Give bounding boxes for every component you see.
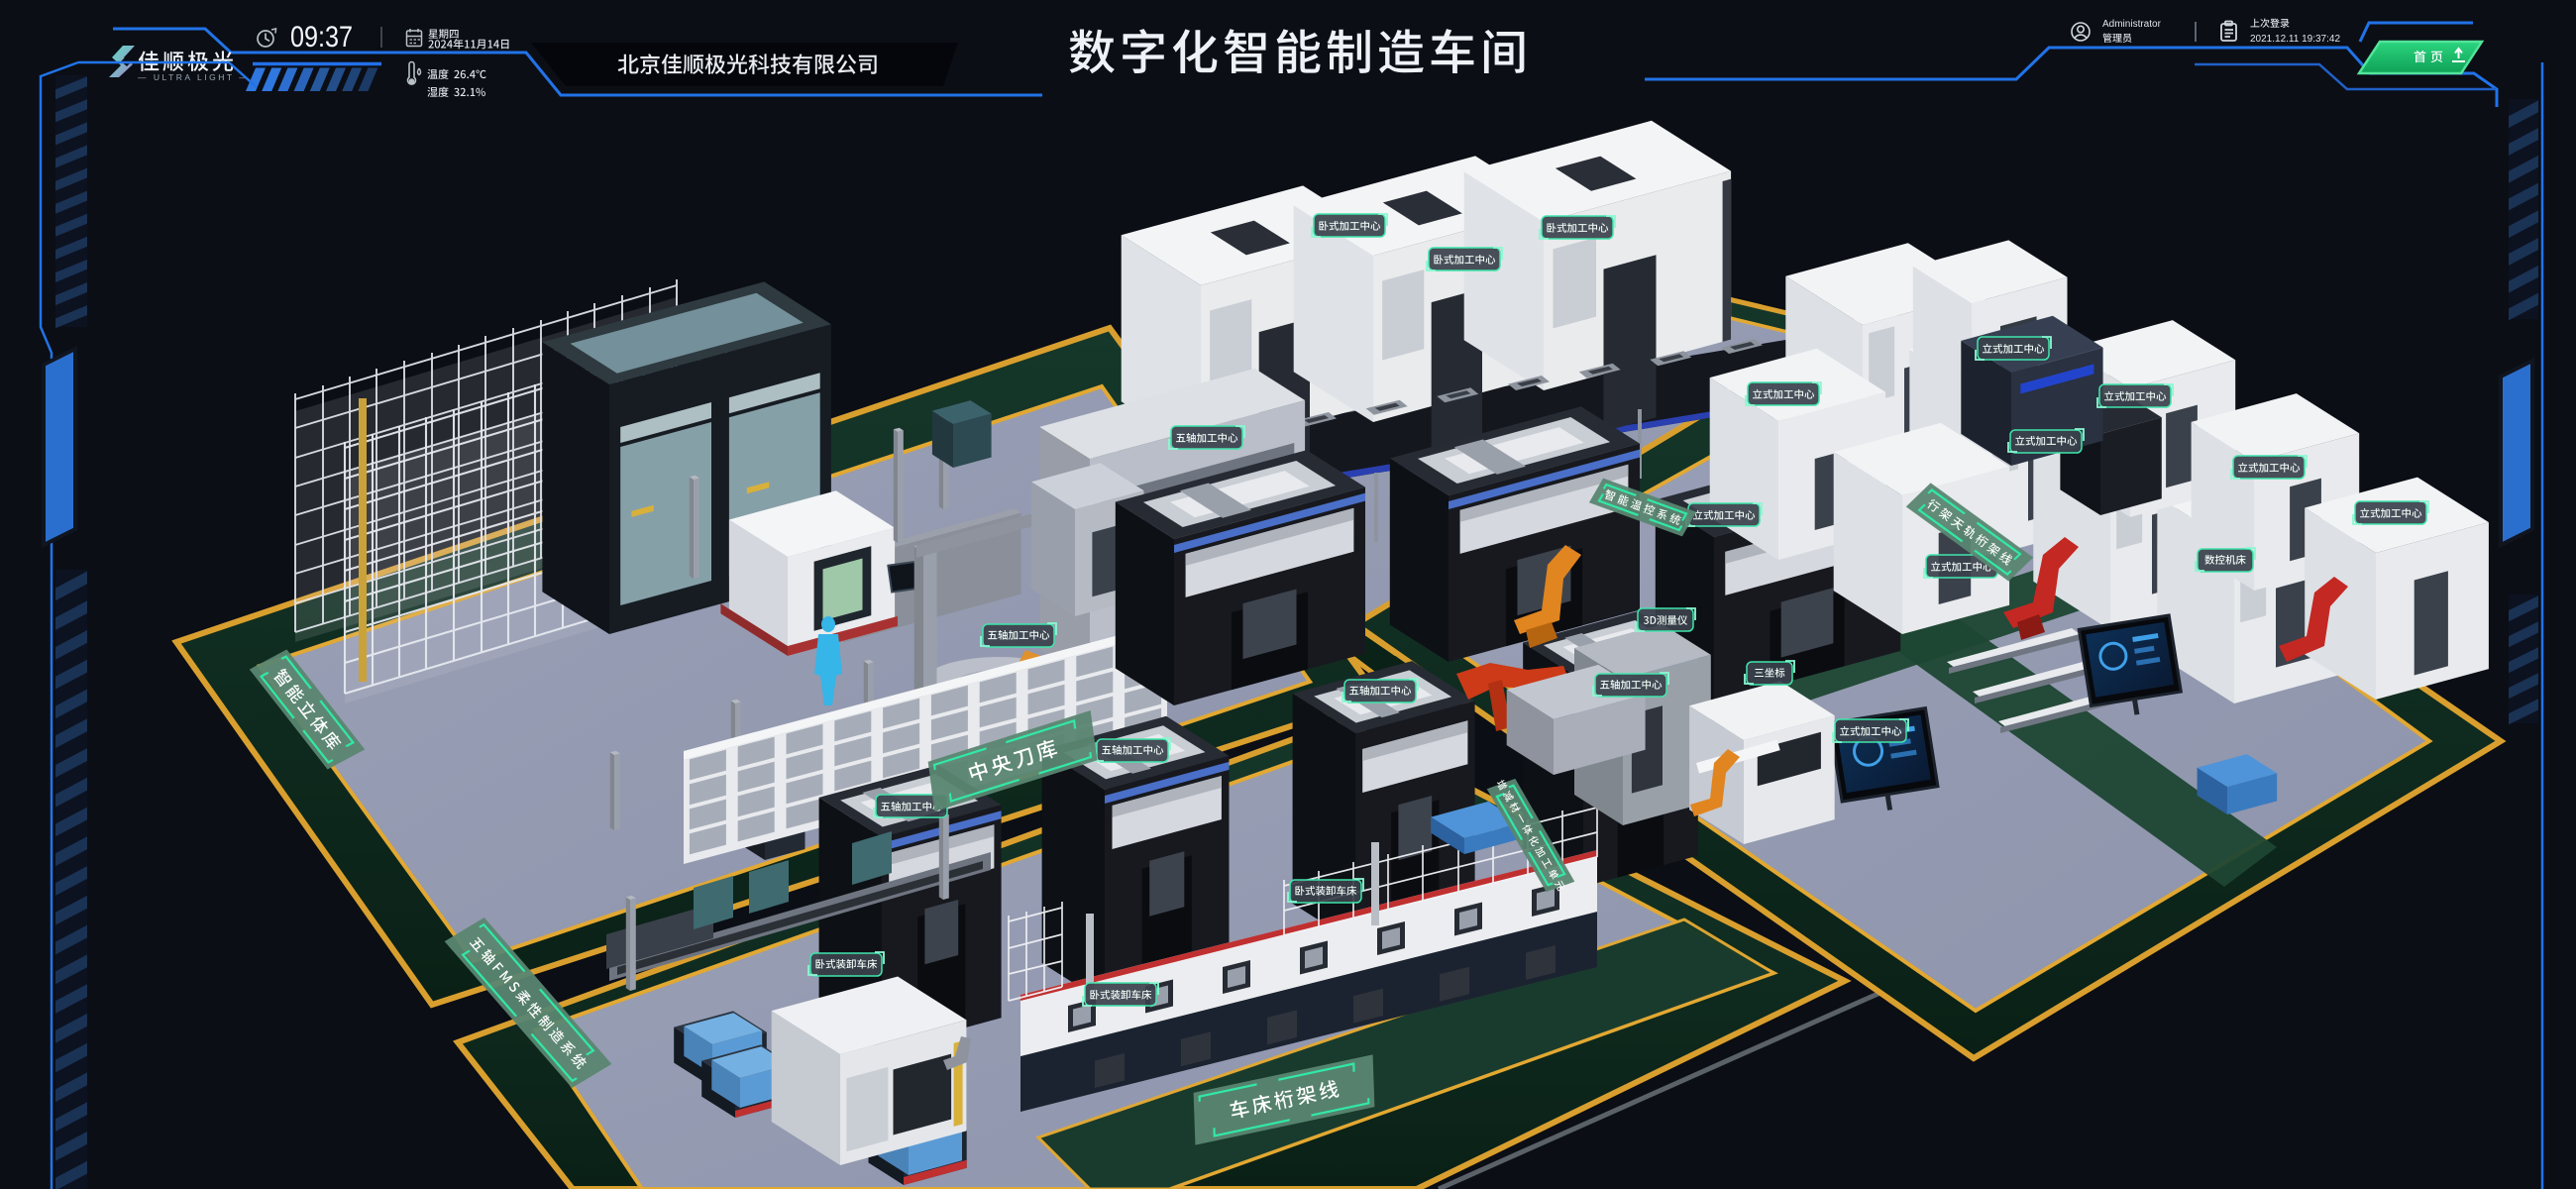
svg-text:Administrator: Administrator — [2102, 19, 2162, 30]
svg-text:— ULTRA LIGHT —: — ULTRA LIGHT — — [138, 72, 250, 82]
svg-text:2021.12.11 19:37:42: 2021.12.11 19:37:42 — [2250, 34, 2340, 45]
svg-text:09:37: 09:37 — [290, 21, 353, 54]
